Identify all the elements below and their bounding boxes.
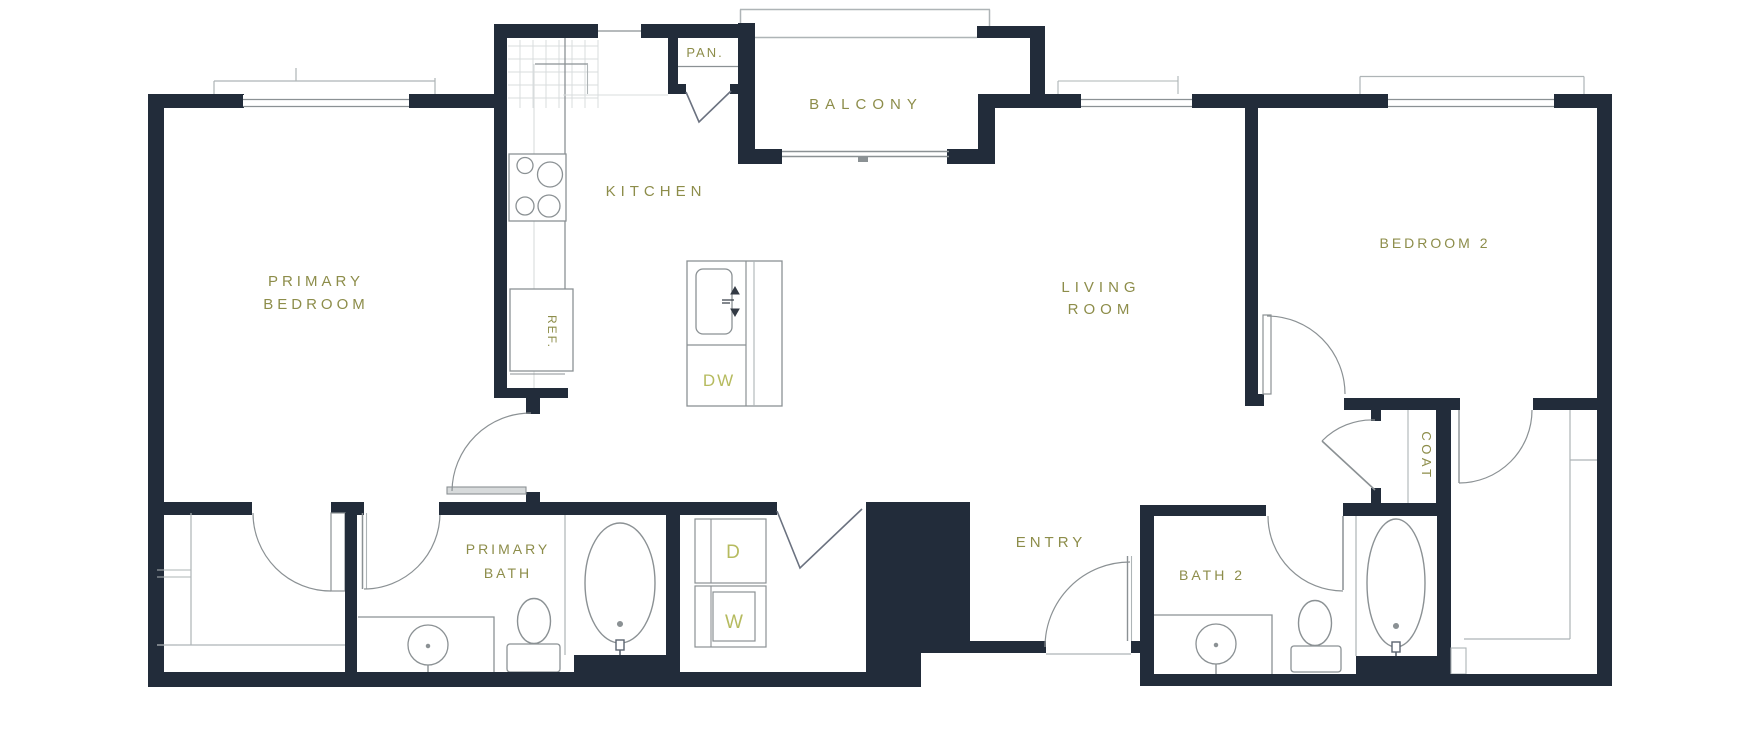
svg-text:PRIMARY: PRIMARY bbox=[268, 273, 364, 290]
svg-text:BATH: BATH bbox=[484, 565, 532, 581]
svg-text:ROOM: ROOM bbox=[1068, 301, 1135, 318]
svg-text:REF.: REF. bbox=[545, 315, 559, 349]
svg-text:BEDROOM: BEDROOM bbox=[263, 296, 369, 313]
svg-text:BATH 2: BATH 2 bbox=[1179, 567, 1245, 583]
svg-text:COAT: COAT bbox=[1419, 431, 1434, 480]
svg-text:DW: DW bbox=[703, 371, 735, 390]
svg-text:BALCONY: BALCONY bbox=[809, 96, 923, 113]
svg-text:PAN.: PAN. bbox=[686, 45, 723, 60]
svg-text:BEDROOM 2: BEDROOM 2 bbox=[1379, 235, 1490, 251]
svg-text:PRIMARY: PRIMARY bbox=[466, 541, 551, 557]
svg-text:LIVING: LIVING bbox=[1061, 279, 1140, 296]
svg-text:KITCHEN: KITCHEN bbox=[606, 183, 707, 200]
svg-text:W: W bbox=[725, 612, 743, 633]
svg-text:D: D bbox=[726, 542, 740, 563]
svg-text:ENTRY: ENTRY bbox=[1016, 534, 1087, 551]
